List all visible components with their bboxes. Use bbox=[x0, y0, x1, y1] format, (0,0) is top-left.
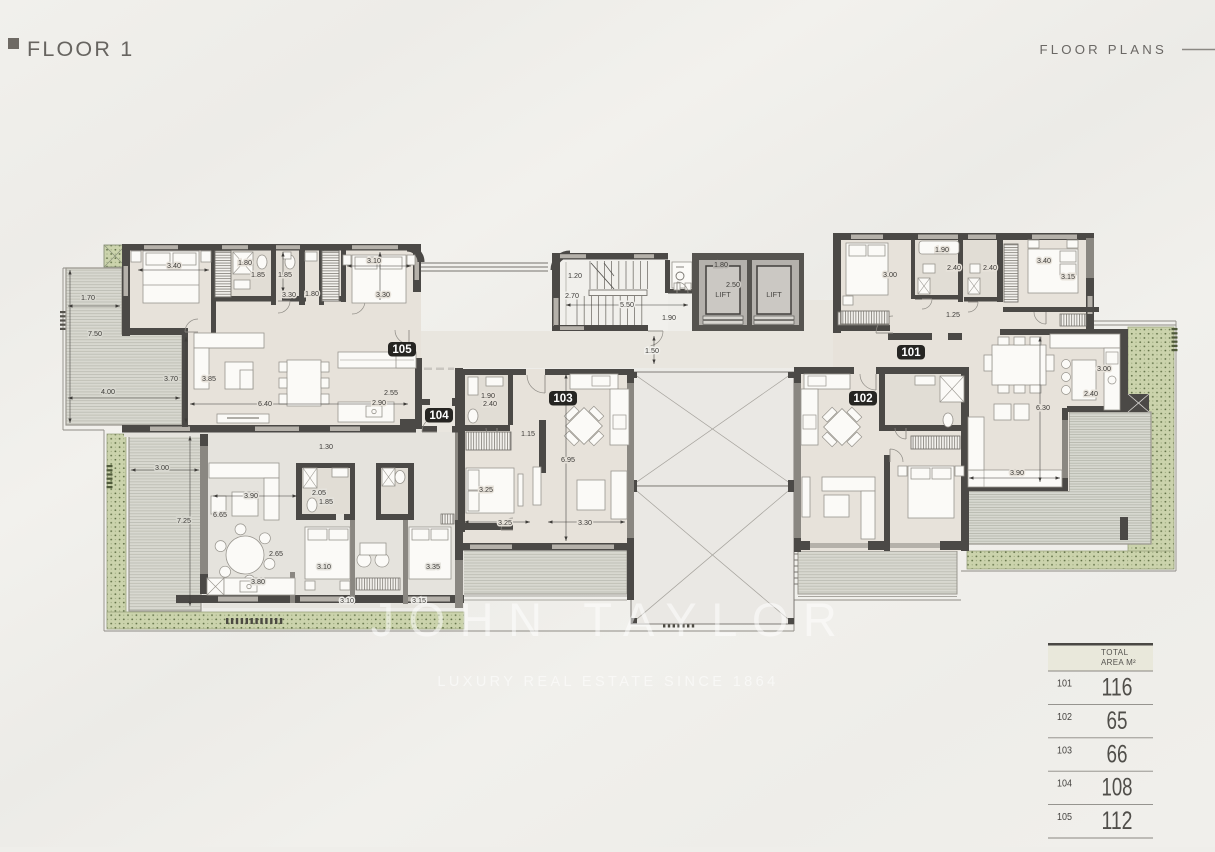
svg-text:3.00: 3.00 bbox=[155, 463, 169, 472]
svg-text:1.15: 1.15 bbox=[521, 429, 535, 438]
svg-text:101: 101 bbox=[1057, 678, 1072, 690]
svg-text:3.80: 3.80 bbox=[251, 577, 265, 586]
svg-text:2.65: 2.65 bbox=[269, 549, 283, 558]
svg-text:105: 105 bbox=[392, 344, 412, 356]
svg-text:66: 66 bbox=[1107, 740, 1128, 768]
svg-text:3.35: 3.35 bbox=[426, 562, 440, 571]
svg-text:2.40: 2.40 bbox=[483, 399, 497, 408]
svg-text:3.85: 3.85 bbox=[202, 374, 216, 383]
svg-text:2.90: 2.90 bbox=[372, 398, 386, 407]
svg-text:1.70: 1.70 bbox=[81, 293, 95, 302]
svg-text:2.70: 2.70 bbox=[565, 291, 579, 300]
svg-text:3.90: 3.90 bbox=[1010, 468, 1024, 477]
svg-text:4.00: 4.00 bbox=[101, 387, 115, 396]
svg-text:6.65: 6.65 bbox=[213, 510, 227, 519]
svg-text:3.25: 3.25 bbox=[498, 518, 512, 527]
svg-text:3.40: 3.40 bbox=[1037, 256, 1051, 265]
svg-text:1.30: 1.30 bbox=[319, 442, 333, 451]
svg-text:2.55: 2.55 bbox=[384, 388, 398, 397]
svg-text:1.50: 1.50 bbox=[645, 346, 659, 355]
svg-text:116: 116 bbox=[1102, 674, 1133, 702]
svg-text:6.95: 6.95 bbox=[561, 455, 575, 464]
svg-text:3.25: 3.25 bbox=[479, 485, 493, 494]
svg-text:102: 102 bbox=[1057, 711, 1072, 723]
svg-text:3.40: 3.40 bbox=[167, 261, 181, 270]
svg-text:104: 104 bbox=[1057, 778, 1072, 790]
svg-text:JOHN TAYLOR: JOHN TAYLOR bbox=[371, 593, 852, 646]
svg-text:LIFT: LIFT bbox=[715, 290, 731, 299]
svg-text:TOTAL: TOTAL bbox=[1101, 648, 1129, 657]
svg-text:112: 112 bbox=[1102, 807, 1133, 835]
svg-text:2.40: 2.40 bbox=[983, 263, 997, 272]
svg-text:3.00: 3.00 bbox=[883, 270, 897, 279]
svg-text:7.25: 7.25 bbox=[177, 516, 191, 525]
svg-text:AREA M²: AREA M² bbox=[1101, 658, 1136, 667]
svg-text:108: 108 bbox=[1102, 774, 1133, 802]
svg-text:LIFT: LIFT bbox=[766, 290, 782, 299]
svg-text:3.10: 3.10 bbox=[367, 256, 381, 265]
svg-text:1.80: 1.80 bbox=[238, 258, 252, 267]
svg-text:1.20: 1.20 bbox=[568, 271, 582, 280]
svg-text:3.10: 3.10 bbox=[340, 596, 354, 605]
svg-text:3.90: 3.90 bbox=[244, 491, 258, 500]
svg-text:3.15: 3.15 bbox=[1061, 272, 1075, 281]
svg-text:6.40: 6.40 bbox=[258, 399, 272, 408]
svg-text:7.50: 7.50 bbox=[88, 329, 102, 338]
svg-text:3.00: 3.00 bbox=[1097, 364, 1111, 373]
svg-text:1.25: 1.25 bbox=[946, 310, 960, 319]
svg-text:1.85: 1.85 bbox=[278, 270, 292, 279]
svg-text:FLOOR PLANS: FLOOR PLANS bbox=[1039, 42, 1167, 57]
svg-text:1.85: 1.85 bbox=[251, 270, 265, 279]
svg-text:2.50: 2.50 bbox=[726, 280, 740, 289]
svg-text:102: 102 bbox=[853, 393, 872, 405]
svg-text:103: 103 bbox=[553, 393, 572, 405]
svg-text:FLOOR 1: FLOOR 1 bbox=[27, 37, 134, 61]
svg-text:LUXURY REAL ESTATE SINCE 1864: LUXURY REAL ESTATE SINCE 1864 bbox=[437, 674, 778, 690]
svg-text:6.30: 6.30 bbox=[1036, 403, 1050, 412]
svg-text:1.85: 1.85 bbox=[319, 497, 333, 506]
svg-text:1.80: 1.80 bbox=[714, 260, 728, 269]
svg-text:1.80: 1.80 bbox=[305, 289, 319, 298]
svg-text:2.05: 2.05 bbox=[312, 488, 326, 497]
svg-text:3.30: 3.30 bbox=[282, 290, 296, 299]
svg-text:65: 65 bbox=[1107, 707, 1128, 735]
svg-text:1.90: 1.90 bbox=[662, 313, 676, 322]
svg-text:103: 103 bbox=[1057, 744, 1072, 756]
svg-text:3.70: 3.70 bbox=[164, 374, 178, 383]
svg-text:3.10: 3.10 bbox=[317, 562, 331, 571]
svg-text:2.40: 2.40 bbox=[1084, 389, 1098, 398]
svg-text:104: 104 bbox=[429, 410, 449, 422]
svg-text:105: 105 bbox=[1057, 811, 1072, 823]
svg-text:1.90: 1.90 bbox=[935, 245, 949, 254]
svg-text:2.40: 2.40 bbox=[947, 263, 961, 272]
svg-text:5.50: 5.50 bbox=[620, 300, 634, 309]
svg-text:101: 101 bbox=[901, 347, 921, 359]
svg-text:3.30: 3.30 bbox=[376, 290, 390, 299]
svg-text:3.30: 3.30 bbox=[578, 518, 592, 527]
